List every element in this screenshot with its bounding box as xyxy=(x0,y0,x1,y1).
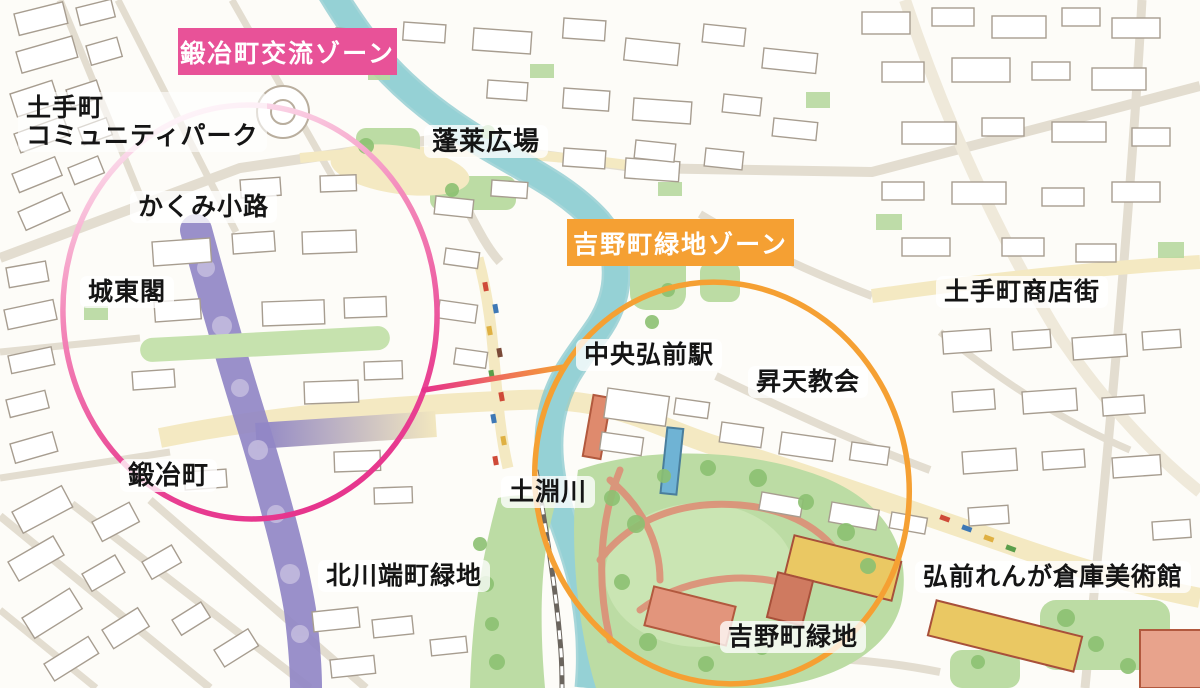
label-joto-kaku: 城東閣 xyxy=(80,276,174,308)
label-yoshinocho-ryokuchi: 吉野町緑地 xyxy=(720,621,866,653)
label-line-2: コミュニティパーク xyxy=(26,122,259,150)
kajimachi-zone-badge: 鍛冶町交流ゾーン xyxy=(178,28,397,75)
illustrated-map: 鍛冶町交流ゾーン 吉野町緑地ゾーン 土手町 コミュニティパーク 蓬莱広場 かくみ… xyxy=(0,0,1200,688)
label-hirosaki-renga-soko-museum: 弘前れんが倉庫美術館 xyxy=(915,561,1191,593)
label-dotemachi-shotengai: 土手町商店街 xyxy=(936,276,1108,308)
yoshinocho-zone-badge: 吉野町緑地ゾーン xyxy=(567,219,794,266)
label-line-1: 土手町 xyxy=(26,94,259,122)
label-chuo-hirosaki-station: 中央弘前駅 xyxy=(576,339,722,371)
label-tsuchibuchi-river: 土淵川 xyxy=(501,476,595,508)
label-kakumi-koji: かくみ小路 xyxy=(130,191,277,223)
label-kitakawabata-ryokuchi: 北川端町緑地 xyxy=(318,560,490,592)
label-kajimachi: 鍛冶町 xyxy=(120,459,217,492)
label-shoten-church: 昇天教会 xyxy=(748,366,868,398)
label-dotemachi-community-park: 土手町 コミュニティパーク xyxy=(18,92,267,152)
label-horai-plaza: 蓬莱広場 xyxy=(424,125,548,158)
